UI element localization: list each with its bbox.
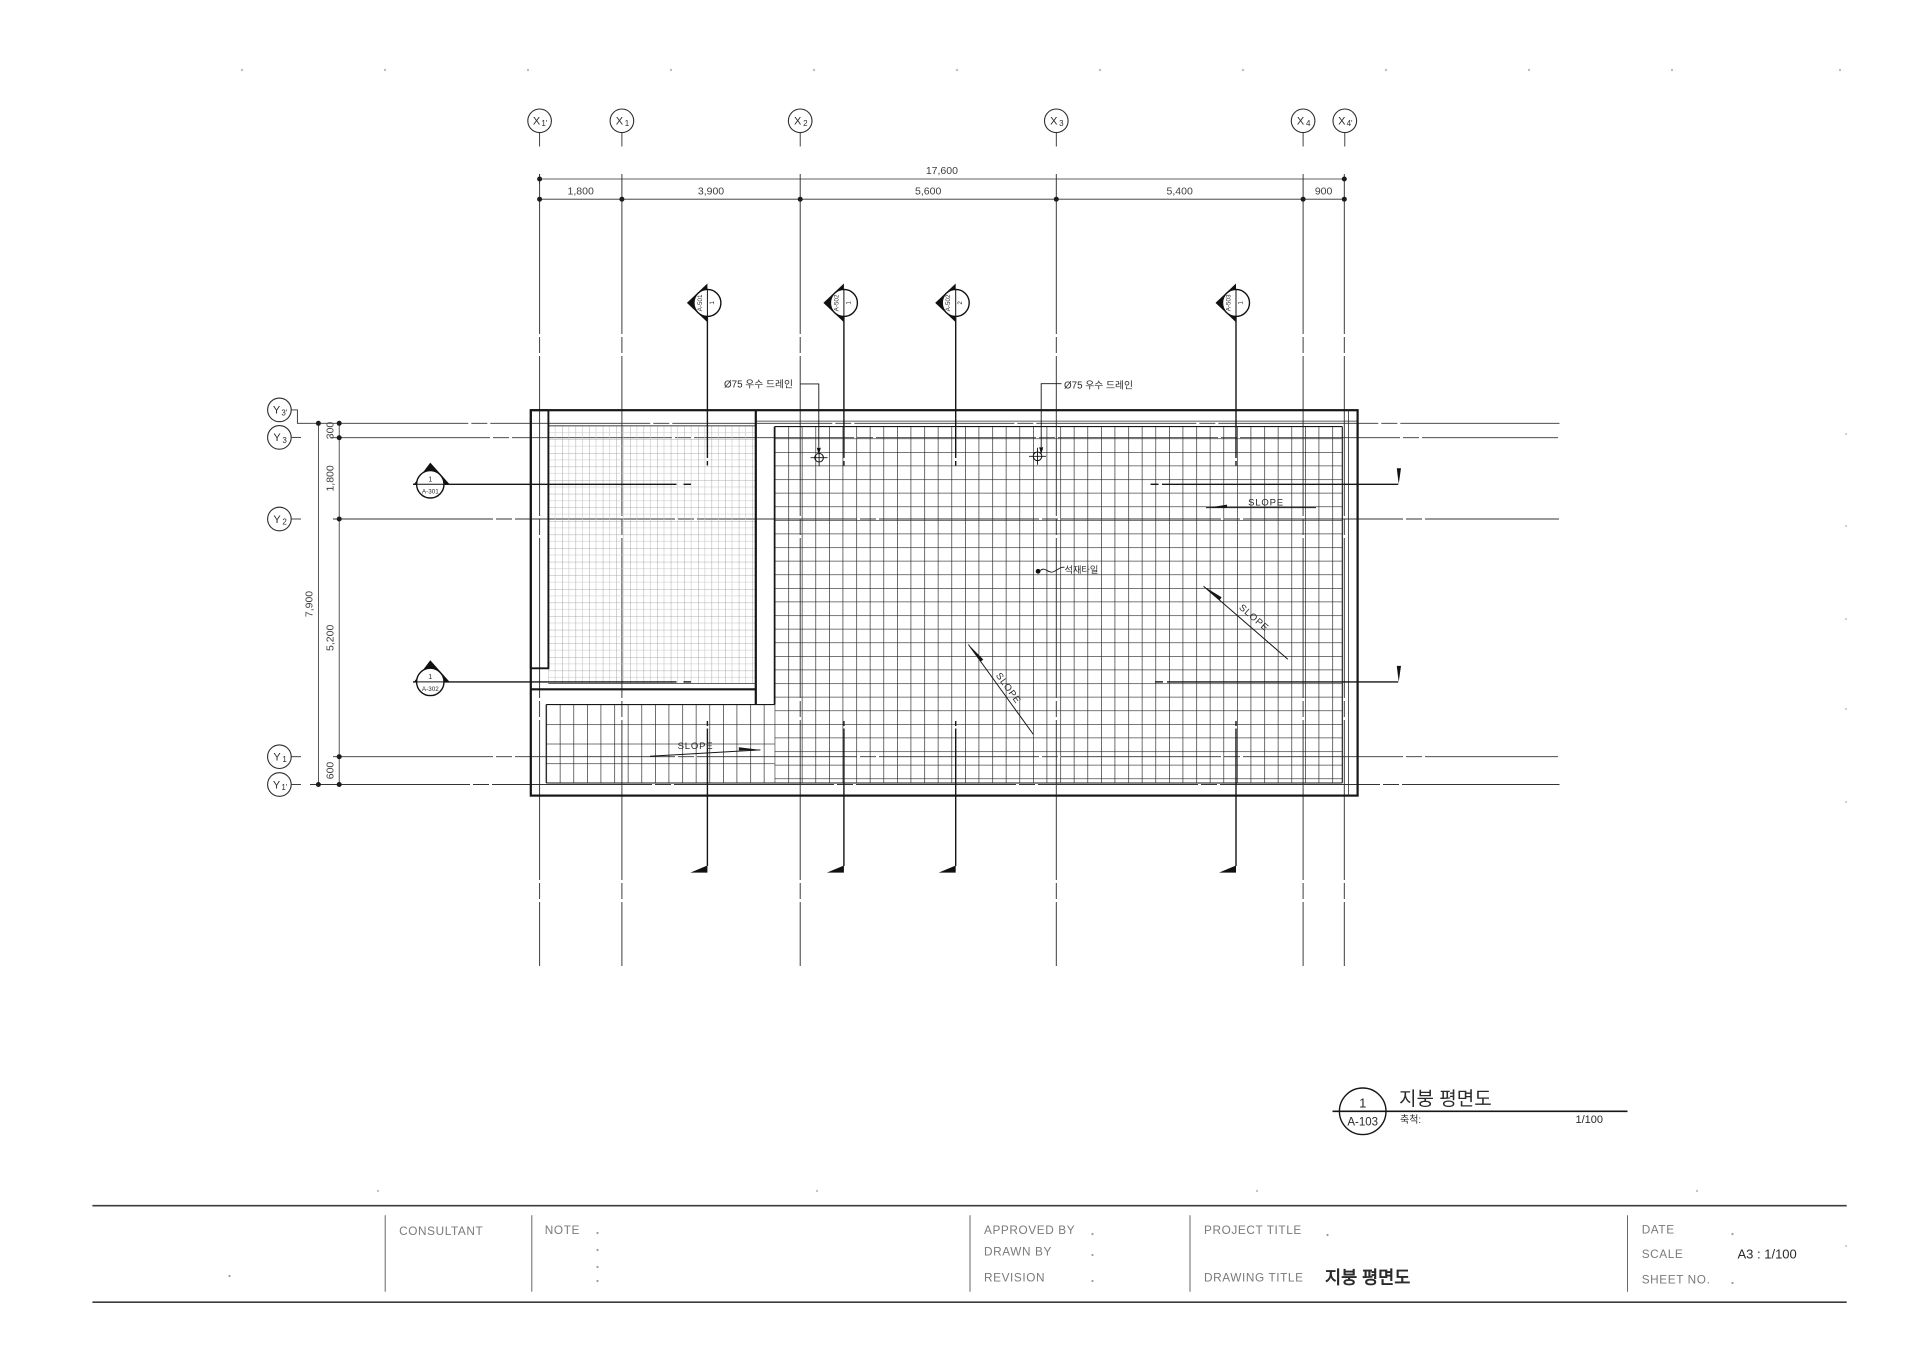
svg-text:A-301: A-301 [422,489,439,496]
svg-text:Ø75 우수 드레인: Ø75 우수 드레인 [724,378,793,390]
svg-text:Y: Y [273,779,281,791]
svg-text:17,600: 17,600 [926,165,958,177]
svg-text:900: 900 [1315,186,1333,198]
svg-text:DATE: DATE [1642,1223,1675,1237]
svg-text:1: 1 [1238,301,1245,305]
svg-text:SLOPE: SLOPE [678,741,714,752]
svg-text:600: 600 [324,762,336,780]
svg-text:NOTE: NOTE [545,1223,580,1237]
svg-text:X: X [1338,116,1346,128]
svg-text:지붕 평면도: 지붕 평면도 [1399,1088,1492,1110]
svg-text:DRAWING TITLE: DRAWING TITLE [1204,1271,1304,1285]
svg-text:A-502: A-502 [945,294,952,311]
svg-text:A3 : 1/100: A3 : 1/100 [1738,1247,1797,1262]
svg-text:REVISION: REVISION [984,1271,1045,1285]
svg-text:PROJECT TITLE: PROJECT TITLE [1204,1223,1302,1237]
svg-text:A-503: A-503 [1226,294,1233,311]
svg-text:A-501: A-501 [697,294,704,311]
svg-text:2: 2 [803,119,808,128]
svg-text:1: 1 [282,755,287,764]
svg-text:A-103: A-103 [1347,1117,1378,1129]
svg-text:1: 1 [709,301,716,305]
svg-text:X: X [794,116,802,128]
svg-text:A-302: A-302 [422,686,439,693]
svg-text:1: 1 [845,301,852,305]
svg-text:X: X [1050,116,1058,128]
svg-text:1,800: 1,800 [568,186,594,198]
svg-text:2: 2 [282,517,287,526]
svg-text:지붕 평면도: 지붕 평면도 [1325,1268,1410,1288]
svg-text:SHEET NO.: SHEET NO. [1642,1273,1711,1287]
svg-text:4': 4' [1347,119,1353,128]
svg-text:X: X [616,116,624,128]
svg-text:Y: Y [273,514,281,526]
svg-text:1: 1 [428,476,432,483]
svg-text:X: X [1297,116,1305,128]
svg-text:Ø75 우수 드레인: Ø75 우수 드레인 [1064,380,1133,392]
svg-text:APPROVED BY: APPROVED BY [984,1223,1075,1237]
svg-text:1: 1 [428,674,432,681]
svg-text:300: 300 [324,422,336,440]
svg-text:SLOPE: SLOPE [1248,498,1284,509]
svg-text:SCALE: SCALE [1642,1247,1684,1261]
svg-text:X: X [533,116,541,128]
svg-text:5,200: 5,200 [324,625,336,651]
svg-text:1/100: 1/100 [1576,1114,1604,1126]
svg-text:A-502: A-502 [833,294,840,311]
svg-text:1,800: 1,800 [324,465,336,491]
svg-text:Y: Y [273,405,281,417]
svg-text:4: 4 [1306,119,1311,128]
svg-text:2: 2 [957,301,964,305]
svg-text:Y: Y [273,432,281,444]
svg-text:5,600: 5,600 [915,186,941,198]
svg-text:축척:: 축척: [1400,1114,1421,1126]
svg-text:CONSULTANT: CONSULTANT [399,1224,483,1238]
svg-text:석재타일: 석재타일 [1065,565,1099,575]
svg-text:3,900: 3,900 [698,186,724,198]
svg-text:Y: Y [273,752,281,764]
svg-text:5,400: 5,400 [1167,186,1193,198]
svg-text:1': 1' [281,783,287,792]
svg-text:7,900: 7,900 [303,591,315,617]
svg-text:3': 3' [281,408,287,417]
svg-text:1': 1' [541,119,547,128]
svg-text:DRAWN BY: DRAWN BY [984,1245,1052,1259]
svg-text:3: 3 [282,436,287,445]
svg-text:3: 3 [1059,119,1064,128]
svg-text:1: 1 [1359,1096,1366,1111]
svg-text:1: 1 [625,119,630,128]
